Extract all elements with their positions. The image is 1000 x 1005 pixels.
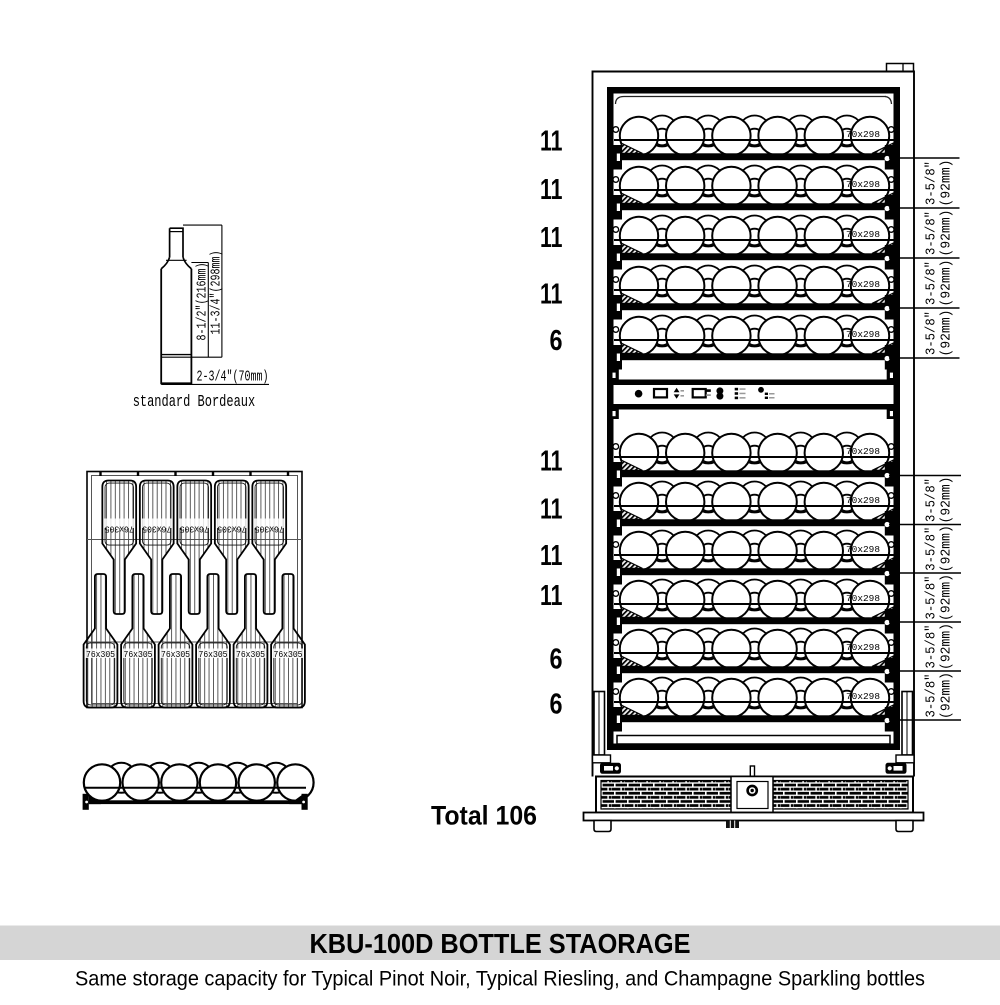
svg-text:(92mm): (92mm)	[939, 310, 955, 357]
svg-text:76x305: 76x305	[142, 524, 171, 535]
svg-text:11: 11	[540, 222, 563, 254]
svg-text:(92mm): (92mm)	[939, 672, 955, 719]
svg-text:11: 11	[540, 174, 563, 206]
svg-text:3-5/8″: 3-5/8″	[924, 311, 940, 355]
svg-text:76x305: 76x305	[124, 649, 153, 660]
svg-text:KBU-100D BOTTLE STAORAGE: KBU-100D BOTTLE STAORAGE	[310, 928, 691, 959]
svg-text:3-5/8″: 3-5/8″	[924, 527, 940, 571]
svg-text:2-3/4″(70mm): 2-3/4″(70mm)	[197, 370, 269, 386]
svg-text:3-5/8″: 3-5/8″	[924, 211, 940, 255]
svg-text:(92mm): (92mm)	[939, 623, 955, 670]
svg-text:6: 6	[550, 325, 563, 357]
svg-text:3-5/8″: 3-5/8″	[924, 161, 940, 205]
svg-text:76x305: 76x305	[199, 649, 228, 660]
svg-text:(92mm): (92mm)	[939, 260, 955, 307]
svg-text:standard Bordeaux: standard Bordeaux	[133, 393, 255, 412]
svg-text:Same storage capacity for Typi: Same storage capacity for Typical Pinot …	[75, 968, 925, 991]
svg-text:3-5/8″: 3-5/8″	[924, 674, 940, 718]
svg-text:76x305: 76x305	[217, 524, 246, 535]
svg-text:11: 11	[540, 540, 563, 572]
svg-text:(92mm): (92mm)	[939, 574, 955, 621]
svg-text:11-3/4″(298mm): 11-3/4″(298mm)	[209, 251, 224, 335]
svg-text:3-5/8″: 3-5/8″	[924, 478, 940, 522]
svg-text:11: 11	[540, 446, 563, 478]
svg-text:11: 11	[540, 580, 563, 612]
svg-text:76x305: 76x305	[274, 649, 303, 660]
svg-text:(92mm): (92mm)	[939, 477, 955, 524]
svg-text:76x305: 76x305	[161, 649, 190, 660]
svg-text:76x305: 76x305	[236, 649, 265, 660]
svg-text:6: 6	[550, 644, 563, 676]
svg-text:11: 11	[540, 126, 563, 158]
svg-text:76x305: 76x305	[255, 524, 284, 535]
svg-text:11: 11	[540, 279, 563, 311]
svg-text:8-1/2″(216mm): 8-1/2″(216mm)	[196, 263, 211, 341]
svg-text:Total 106: Total 106	[431, 800, 537, 830]
svg-text:11: 11	[540, 494, 563, 526]
svg-text:6: 6	[550, 689, 563, 721]
svg-text:3-5/8″: 3-5/8″	[924, 576, 940, 620]
svg-text:3-5/8″: 3-5/8″	[924, 261, 940, 305]
svg-text:(92mm): (92mm)	[939, 210, 955, 257]
svg-text:3-5/8″: 3-5/8″	[924, 625, 940, 669]
svg-text:(92mm): (92mm)	[939, 160, 955, 207]
svg-text:76x305: 76x305	[86, 649, 115, 660]
svg-text:(92mm): (92mm)	[939, 525, 955, 572]
svg-text:76x305: 76x305	[105, 524, 134, 535]
svg-text:76x305: 76x305	[180, 524, 209, 535]
